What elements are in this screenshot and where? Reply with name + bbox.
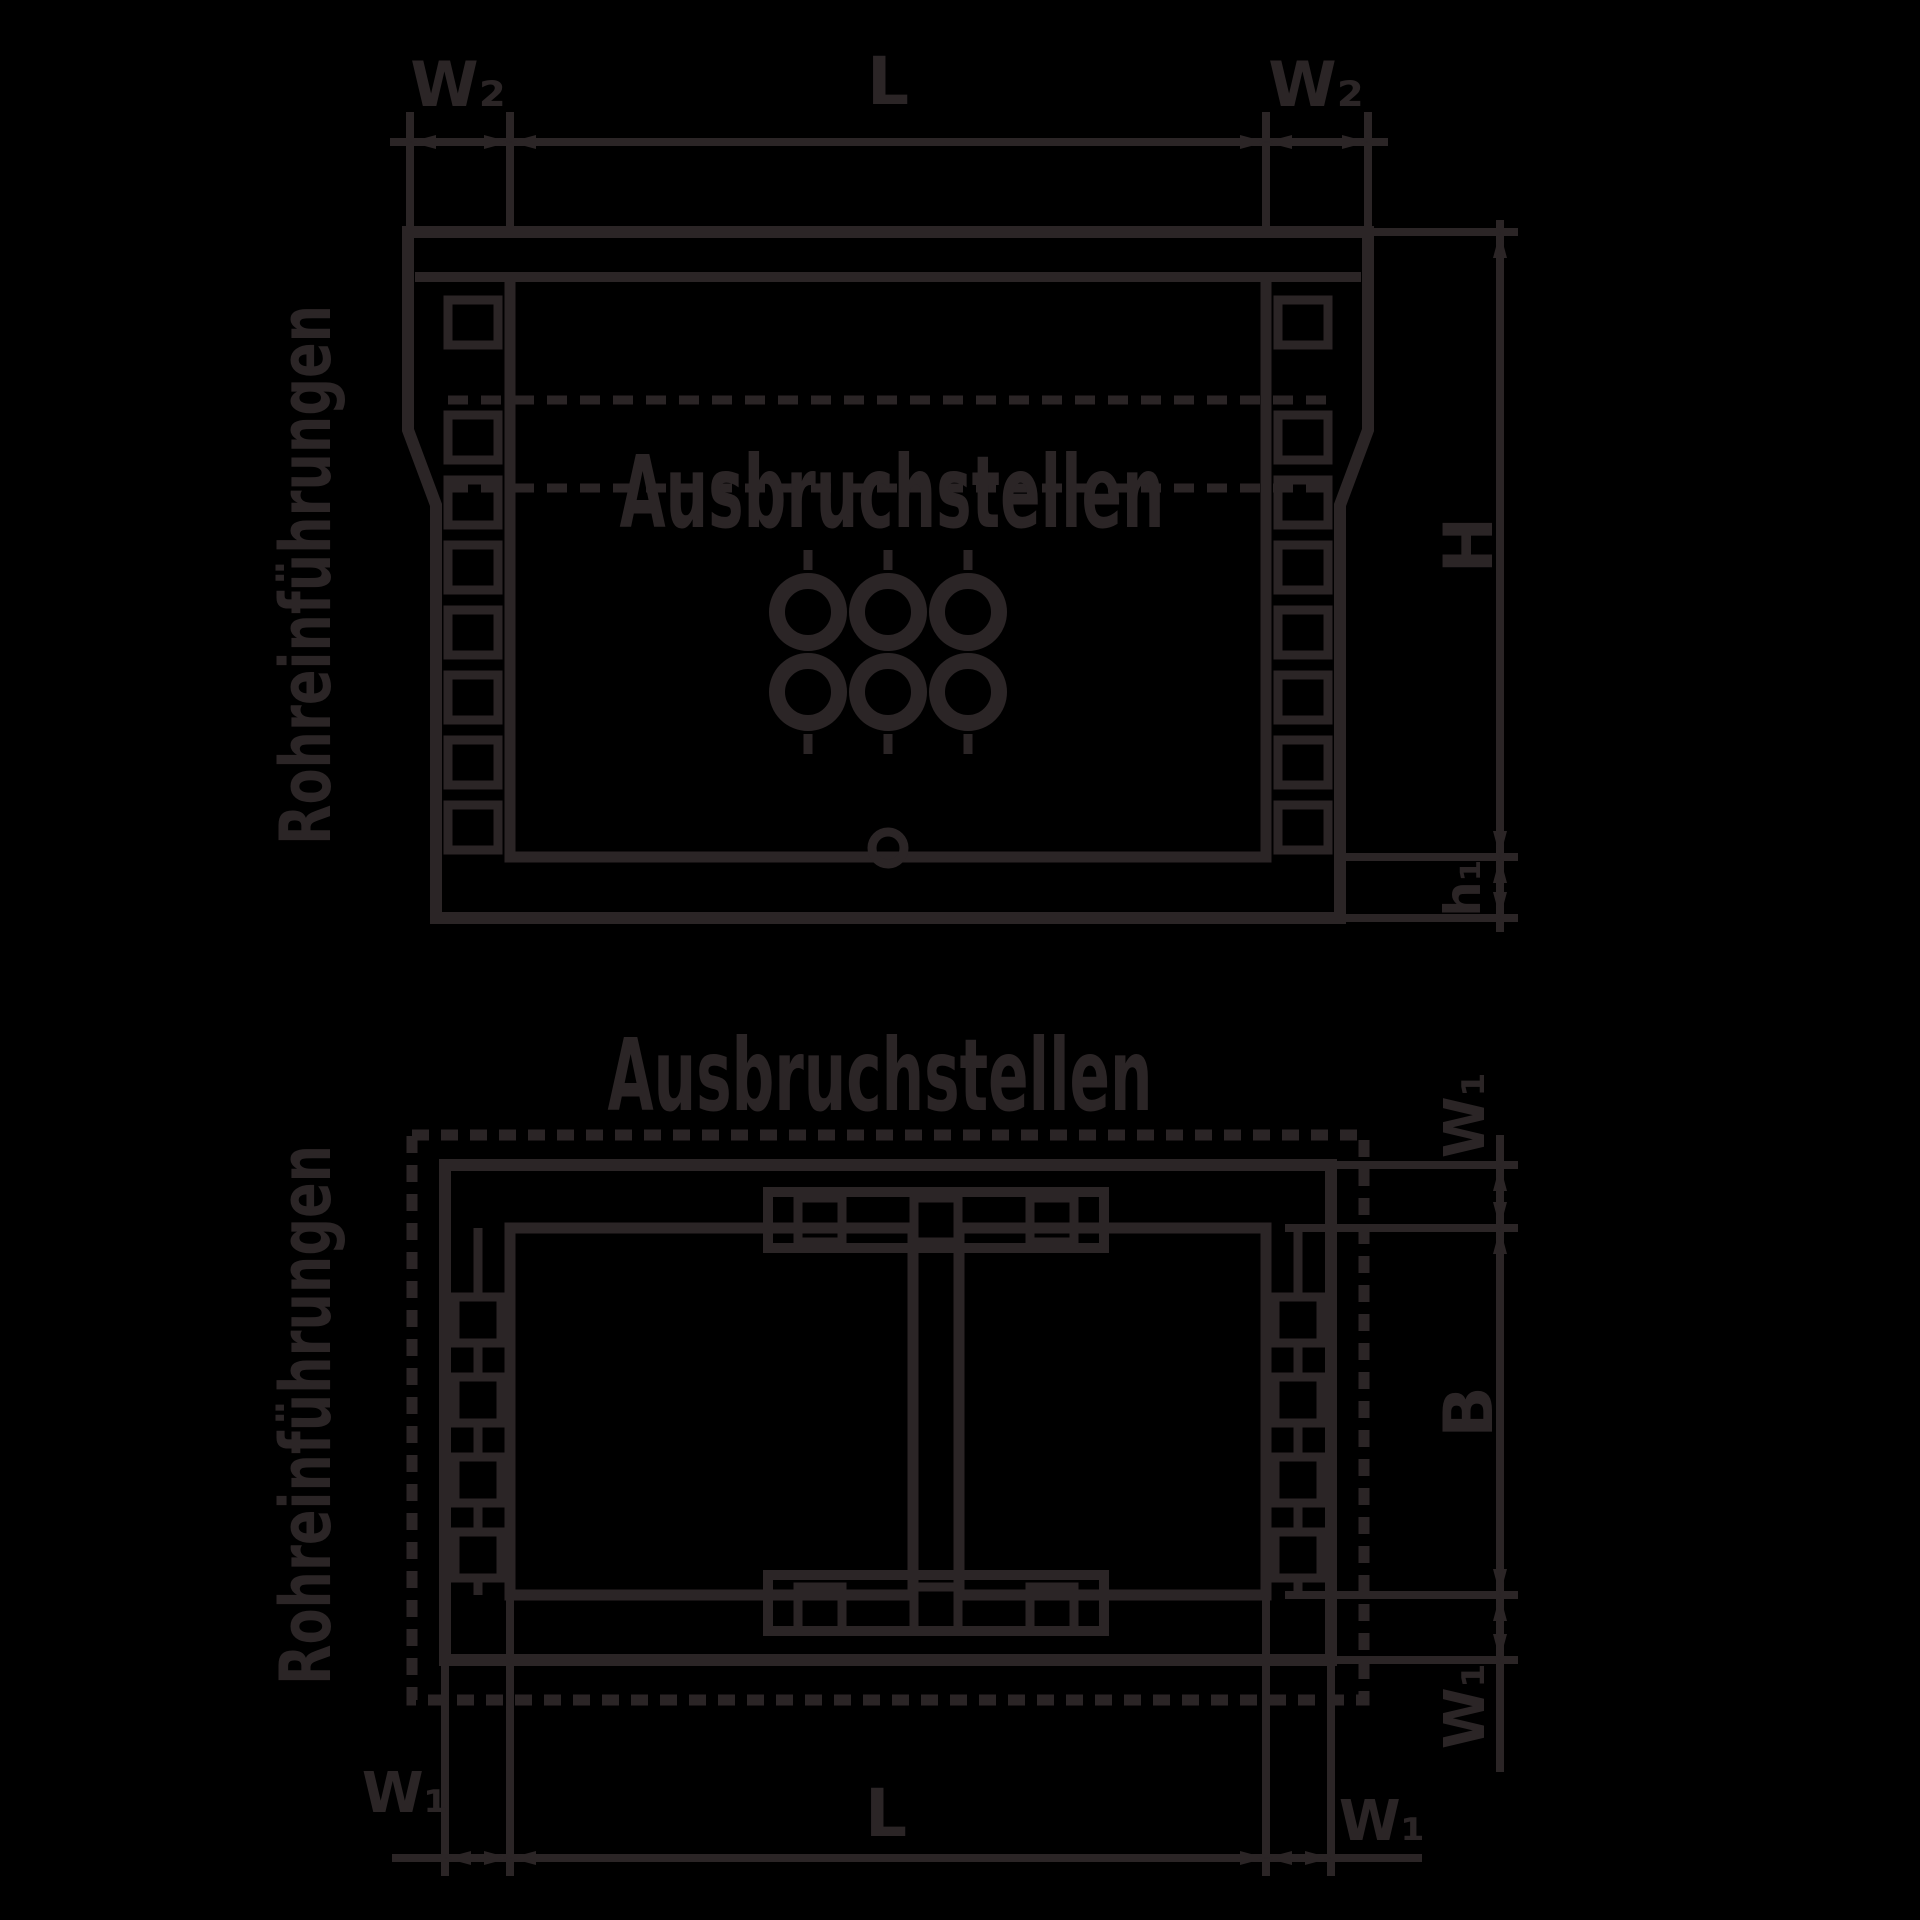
- dim-label-l-top: L: [867, 43, 909, 120]
- dim-label-h1: h₁: [1434, 859, 1492, 917]
- dim-label-w1-right-top: W₁: [1433, 1072, 1498, 1158]
- plan-side-text: Rohreinführungen: [265, 1145, 347, 1685]
- dim-label-h: H: [1430, 517, 1509, 574]
- dim-label-w2-left: W₂: [410, 48, 506, 121]
- drawing-canvas: W₂ L W₂ Ausbruchstellen Rohreinführungen…: [0, 0, 1920, 1920]
- technical-drawing: W₂ L W₂ Ausbruchstellen Rohreinführungen…: [0, 0, 1920, 1920]
- plan-title-text: Ausbruchstellen: [608, 1017, 1153, 1134]
- dim-label-w2-right: W₂: [1268, 48, 1364, 121]
- front-side-text: Rohreinführungen: [265, 305, 347, 845]
- dim-label-l-bottom: L: [865, 1775, 907, 1852]
- dim-label-w1-right-bottom: W₁: [1433, 1663, 1498, 1749]
- front-title-text: Ausbruchstellen: [620, 434, 1165, 551]
- dim-label-w1-bottom-right: W₁: [1339, 1789, 1425, 1854]
- dim-label-w1-bottom-left: W₁: [362, 1761, 448, 1826]
- dim-label-b: B: [1430, 1386, 1509, 1438]
